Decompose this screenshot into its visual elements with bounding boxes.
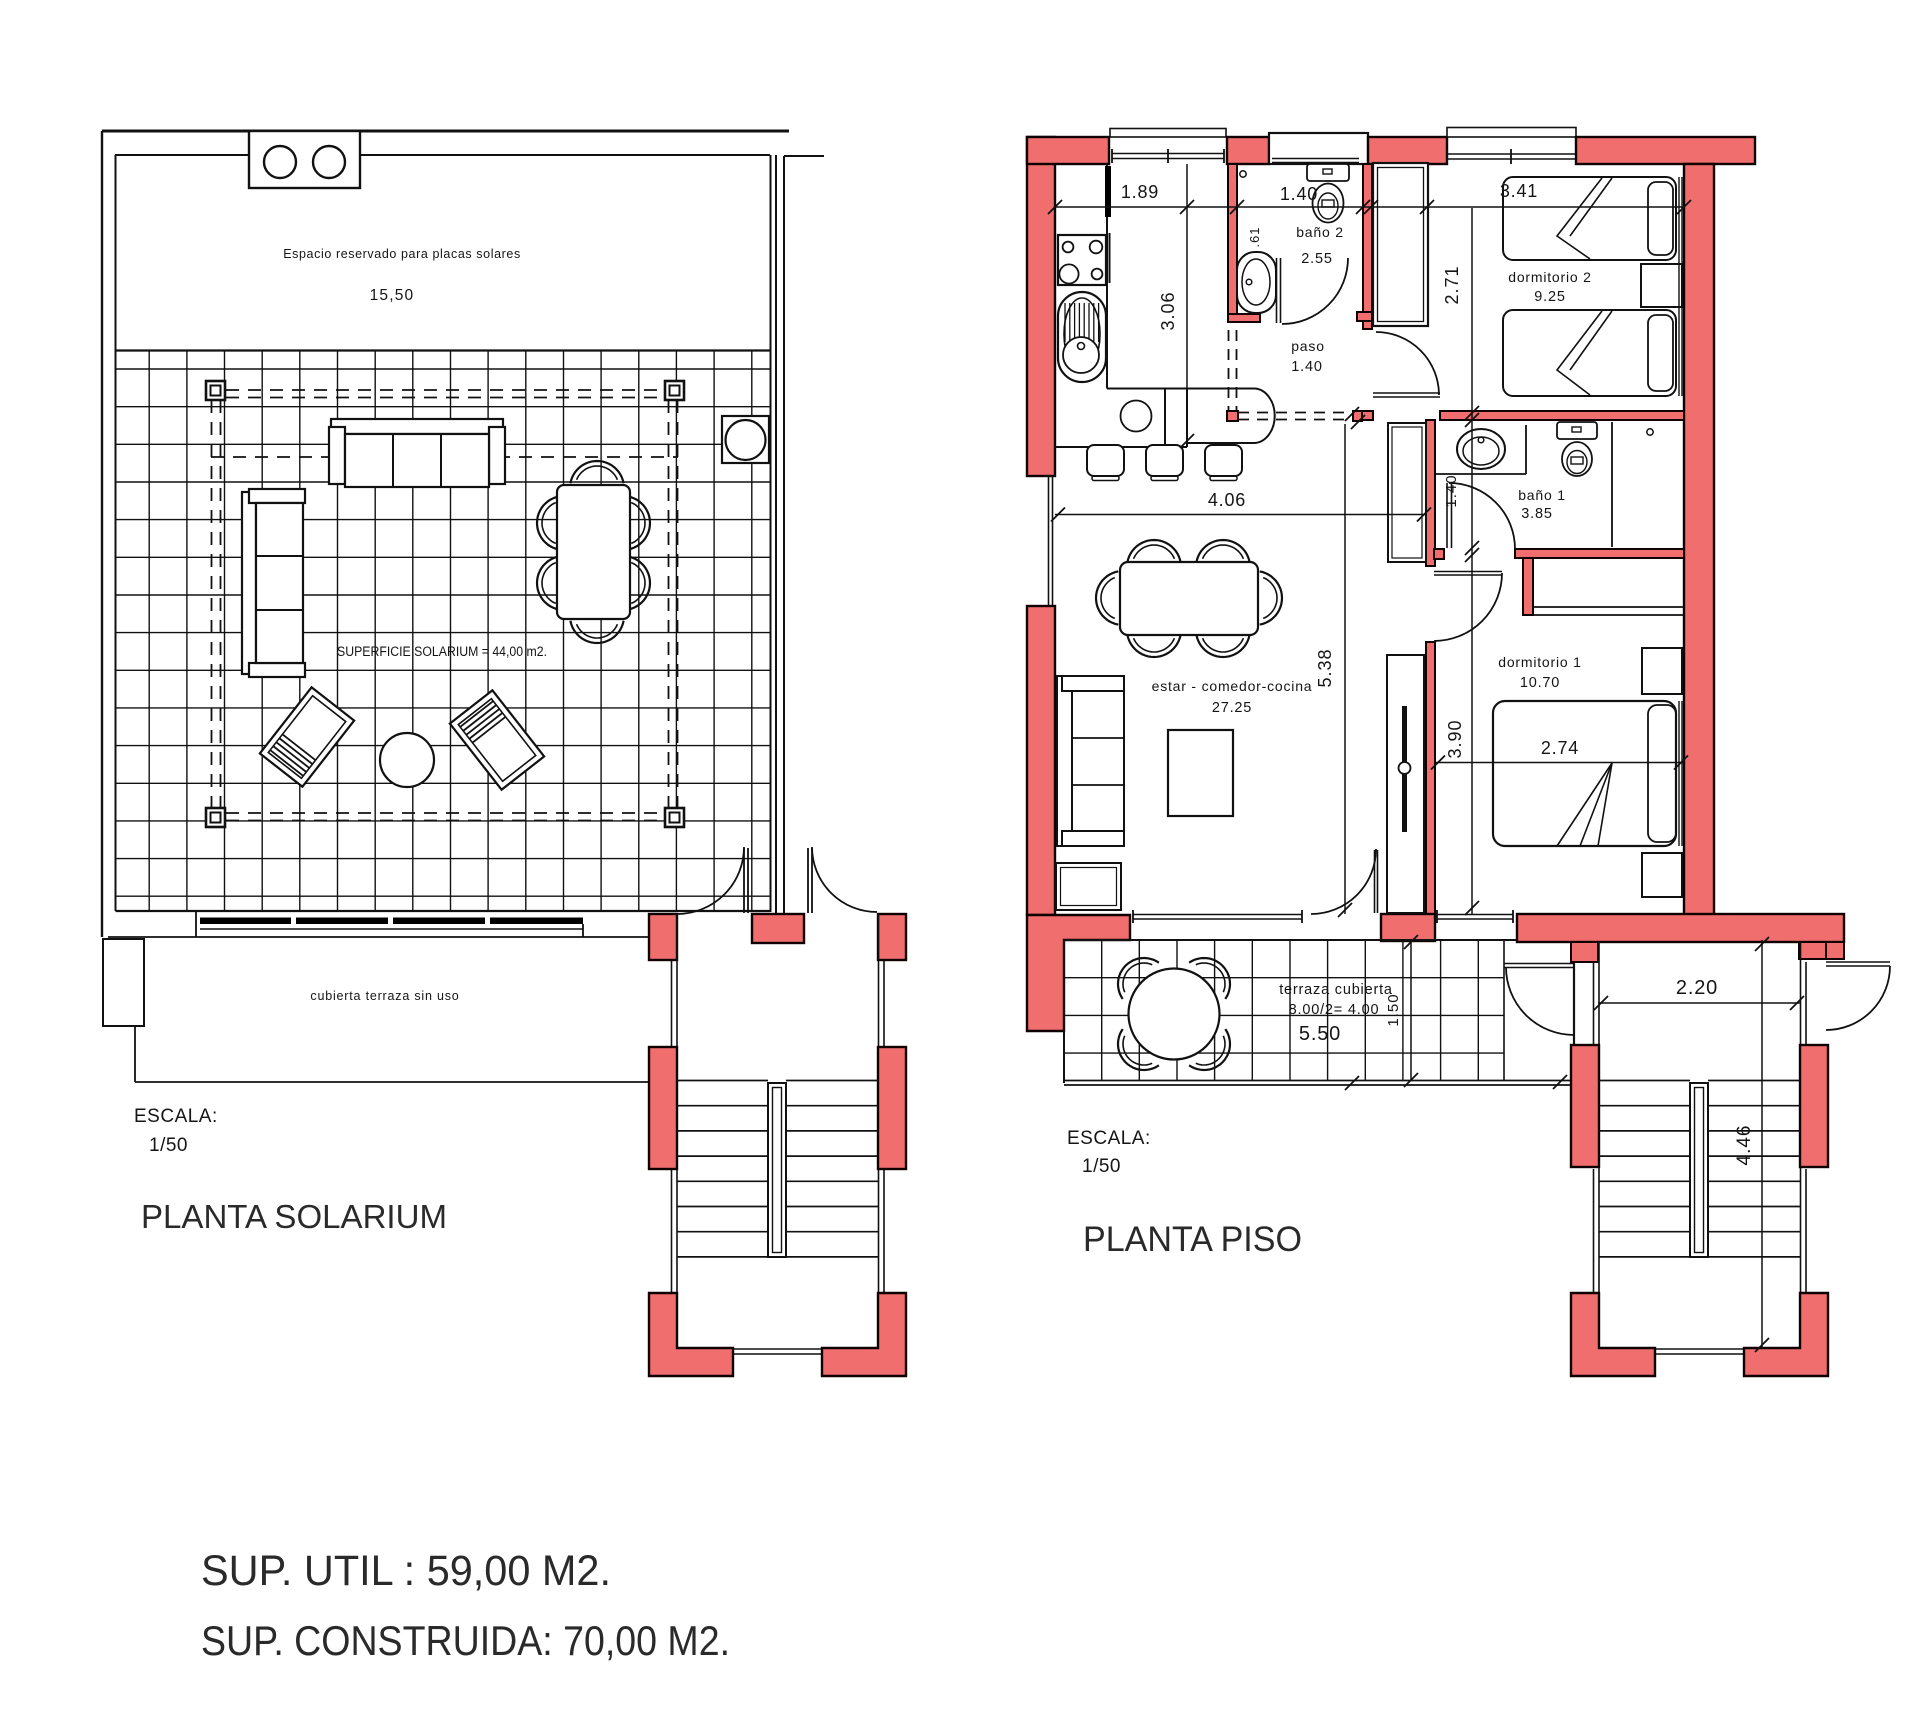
svg-text:estar - comedor-cocina: estar - comedor-cocina — [1152, 678, 1313, 694]
svg-text:dormitorio 1: dormitorio 1 — [1498, 654, 1582, 670]
svg-text:Espacio reservado para plac: Espacio reservado para placas solares — [283, 247, 521, 261]
svg-text:4.46: 4.46 — [1734, 1125, 1755, 1166]
svg-text:8.00/2= 4.00: 8.00/2= 4.00 — [1289, 1002, 1380, 1018]
svg-text:5.38: 5.38 — [1315, 648, 1335, 687]
svg-text:2.55: 2.55 — [1301, 251, 1332, 267]
svg-text:PLANTA SOLARIUM: PLANTA SOLARIUM — [141, 1198, 447, 1235]
svg-text:10.70: 10.70 — [1520, 675, 1560, 691]
svg-text:ESCALA:: ESCALA: — [1067, 1128, 1151, 1149]
svg-text:2.20: 2.20 — [1676, 977, 1718, 999]
svg-text:cubierta terraza sin uso: cubierta terraza sin uso — [310, 989, 459, 1003]
svg-text:3.41: 3.41 — [1500, 181, 1538, 201]
svg-text:baño 2: baño 2 — [1296, 224, 1344, 240]
svg-text:1.40: 1.40 — [1280, 184, 1318, 204]
svg-text:3.90: 3.90 — [1445, 719, 1465, 758]
svg-text:ESCALA:: ESCALA: — [134, 1106, 218, 1127]
svg-text:SUP. CONSTRUIDA: 70,00 M2.: SUP. CONSTRUIDA: 70,00 M2. — [201, 1617, 730, 1664]
svg-text:3.06: 3.06 — [1158, 291, 1178, 330]
svg-text:1.40: 1.40 — [1291, 359, 1322, 375]
svg-text:1/50: 1/50 — [1082, 1156, 1121, 1177]
svg-text:3.85: 3.85 — [1521, 506, 1552, 522]
svg-text:2.74: 2.74 — [1541, 738, 1579, 758]
svg-text:4.06: 4.06 — [1208, 490, 1246, 510]
svg-text:dormitorio 2: dormitorio 2 — [1508, 269, 1592, 285]
svg-text:1.40: 1.40 — [1443, 474, 1460, 507]
svg-text:5.50: 5.50 — [1299, 1023, 1341, 1045]
svg-text:15,50: 15,50 — [370, 287, 415, 304]
svg-text:1/50: 1/50 — [149, 1135, 188, 1156]
svg-text:27.25: 27.25 — [1212, 700, 1252, 716]
svg-text:PLANTA PISO: PLANTA PISO — [1083, 1220, 1302, 1259]
svg-text:paso: paso — [1291, 338, 1325, 354]
svg-text:SUPERFICIE SOLARIUM = 44,00: SUPERFICIE SOLARIUM = 44,00 m2. — [337, 644, 547, 659]
svg-text:1.50: 1.50 — [1385, 993, 1402, 1026]
svg-text:baño 1: baño 1 — [1518, 487, 1566, 503]
svg-text:.61: .61 — [1247, 226, 1262, 247]
svg-text:1.89: 1.89 — [1121, 182, 1159, 202]
svg-text:terraza cubierta: terraza cubierta — [1279, 982, 1393, 998]
svg-text:2.71: 2.71 — [1442, 265, 1462, 304]
svg-text:SUP. UTIL : 59,00 M2.: SUP. UTIL : 59,00 M2. — [201, 1547, 611, 1595]
svg-text:9.25: 9.25 — [1534, 289, 1565, 305]
